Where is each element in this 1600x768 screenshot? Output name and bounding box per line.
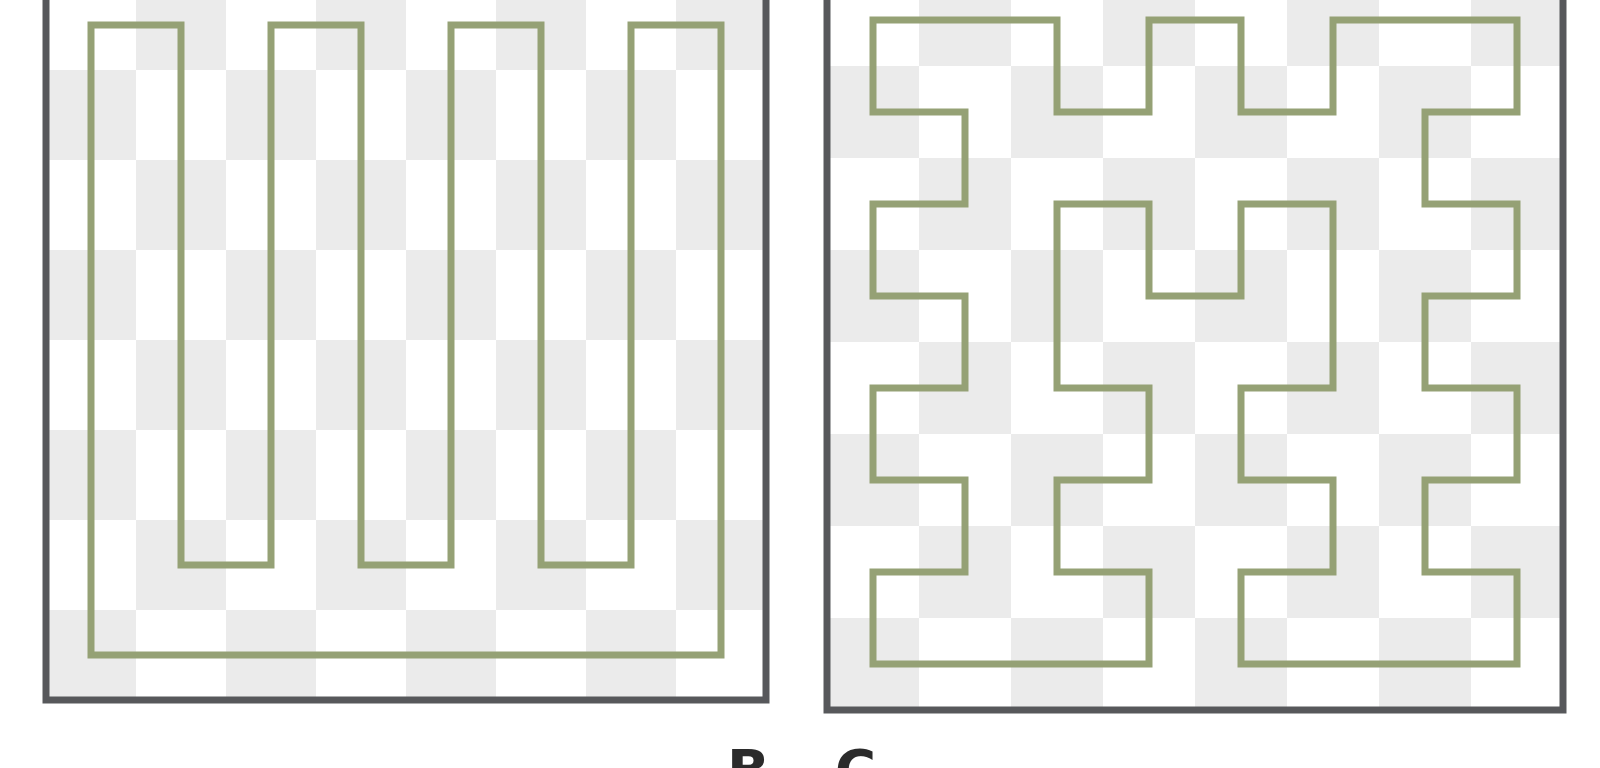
space-filling-curves-figure [0, 0, 1600, 768]
checker-cell [919, 0, 1011, 66]
hilbert-loop-panel [827, 0, 1563, 710]
serpentine-loop-panel [46, 0, 766, 700]
figure-stage: B C [0, 0, 1600, 768]
